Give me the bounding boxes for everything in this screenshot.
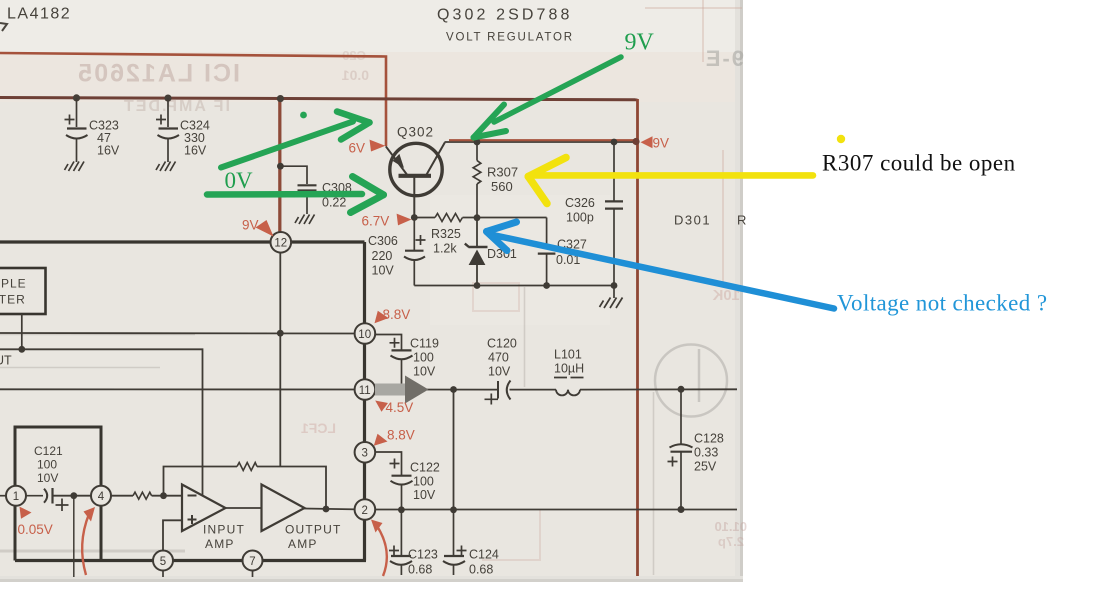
svg-text:0.68: 0.68: [408, 563, 432, 577]
svg-text:100p: 100p: [566, 211, 594, 225]
svg-text:C128: C128: [694, 432, 724, 446]
svg-text:VOLT REGULATOR: VOLT REGULATOR: [446, 32, 574, 44]
svg-text:R: R: [737, 213, 746, 228]
svg-text:100: 100: [413, 475, 434, 489]
svg-text:D301: D301: [674, 213, 711, 228]
svg-text:220: 220: [372, 249, 393, 263]
svg-text:100: 100: [413, 351, 434, 365]
svg-text:16V: 16V: [97, 144, 120, 158]
svg-text:10: 10: [358, 329, 371, 341]
svg-text:INPUT: INPUT: [203, 523, 245, 537]
svg-text:C306: C306: [368, 234, 398, 248]
svg-text:4.5V: 4.5V: [386, 400, 414, 415]
svg-text:0.01: 0.01: [342, 67, 369, 83]
svg-text:0.05V: 0.05V: [18, 522, 53, 537]
svg-text:6V: 6V: [349, 141, 366, 156]
svg-text:9V: 9V: [242, 218, 259, 233]
svg-text:LA4182: LA4182: [7, 6, 71, 23]
svg-text:9-E: 9-E: [704, 46, 744, 71]
svg-text:C124: C124: [469, 548, 499, 562]
svg-text:10V: 10V: [413, 488, 436, 502]
svg-text:8.8V: 8.8V: [387, 428, 415, 443]
svg-text:16V: 16V: [184, 144, 207, 158]
svg-text:L101: L101: [554, 348, 582, 362]
svg-text:AMP: AMP: [288, 537, 318, 551]
svg-text:C120: C120: [487, 337, 517, 351]
svg-text:R307: R307: [487, 165, 518, 180]
svg-text:LTER: LTER: [0, 293, 26, 307]
svg-text:25V: 25V: [694, 460, 717, 474]
svg-text:9V: 9V: [625, 30, 655, 56]
svg-text:C326: C326: [565, 196, 595, 210]
svg-text:10V: 10V: [413, 365, 436, 379]
svg-text:100: 100: [37, 458, 57, 472]
svg-text:470: 470: [488, 351, 509, 365]
svg-text:IF AMP.DET: IF AMP.DET: [122, 98, 230, 115]
svg-text:8.8V: 8.8V: [383, 307, 411, 322]
svg-text:Q302 2SD788: Q302 2SD788: [437, 7, 573, 24]
svg-text:6.7V: 6.7V: [362, 214, 390, 229]
svg-text:OUTPUT: OUTPUT: [285, 523, 342, 537]
svg-text:C119: C119: [410, 337, 439, 351]
svg-text:9V: 9V: [653, 136, 670, 151]
svg-text:C123: C123: [408, 548, 438, 562]
svg-text:10V: 10V: [372, 264, 395, 278]
svg-text:PPLE: PPLE: [0, 277, 27, 291]
svg-text:2: 2: [361, 505, 367, 517]
svg-text:R307 could be open: R307 could be open: [822, 151, 1016, 176]
svg-text:C121: C121: [34, 444, 63, 458]
svg-text:5: 5: [160, 556, 166, 568]
svg-text:UT: UT: [0, 354, 12, 368]
svg-text:10V: 10V: [488, 365, 511, 379]
svg-text:AMP: AMP: [205, 537, 235, 551]
svg-text:12: 12: [274, 238, 287, 250]
svg-text:7: 7: [249, 556, 255, 568]
svg-text:4: 4: [98, 491, 105, 503]
svg-text:Q302: Q302: [397, 125, 434, 140]
svg-text:1: 1: [13, 491, 19, 503]
svg-text:10µH: 10µH: [554, 362, 584, 376]
svg-text:10V: 10V: [37, 471, 58, 485]
svg-text:0.68: 0.68: [469, 563, 493, 577]
svg-text:ICI LA12605: ICI LA12605: [76, 60, 240, 88]
svg-text:2.7p: 2.7p: [718, 534, 744, 549]
svg-text:3: 3: [361, 447, 367, 459]
svg-text:0.22: 0.22: [322, 196, 346, 210]
svg-text:0.33: 0.33: [694, 446, 718, 460]
svg-text:11: 11: [359, 385, 371, 397]
svg-text:R325: R325: [431, 227, 461, 241]
svg-text:Voltage not checked ?: Voltage not checked ?: [837, 291, 1047, 316]
svg-text:560: 560: [491, 179, 513, 194]
svg-text:01.10: 01.10: [714, 519, 747, 534]
svg-text:C122: C122: [410, 461, 440, 475]
svg-text:0V: 0V: [225, 168, 254, 193]
svg-text:LCF1: LCF1: [301, 420, 336, 436]
svg-text:1.2k: 1.2k: [433, 242, 457, 256]
